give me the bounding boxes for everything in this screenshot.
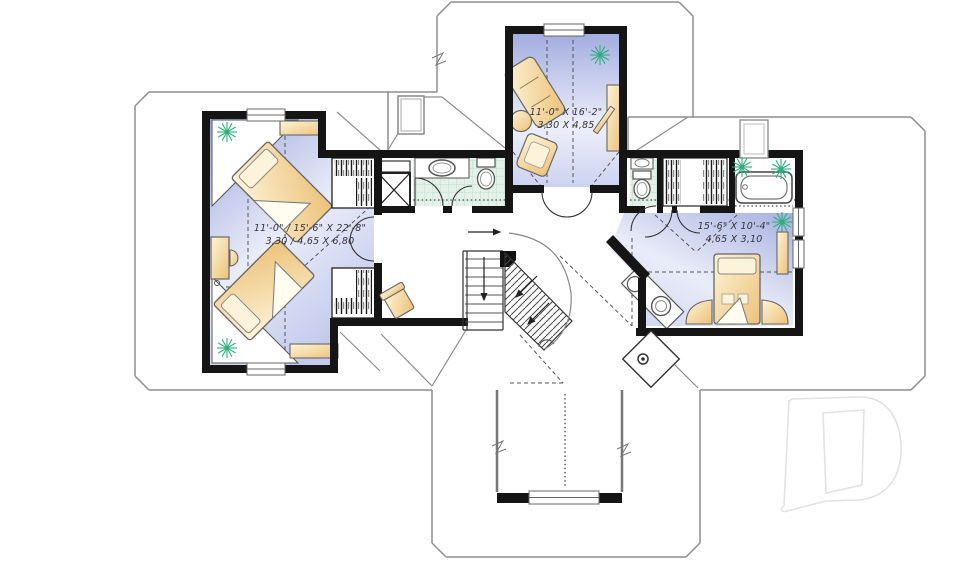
closet-left-upper [332,158,376,208]
bed-icon [714,254,760,324]
chair-icon [379,282,416,320]
bay-window [740,120,768,158]
skylight [398,96,424,134]
sink-icon [631,158,653,169]
room-dimensions-left: 11'-0" / 15'-6" X 22'-8" 3,30 / 4,65 X 6… [234,223,386,249]
dimension-metric: 4,65 X 3,10 [664,234,804,247]
dimension-imperial: 11'-0" / 15'-6" X 22'-8" [234,223,386,236]
toilet-icon [633,171,651,199]
room-dimensions-right: 15'-6" X 10'-4" 4,65 X 3,10 [664,221,804,247]
toilet-icon [477,158,495,189]
watermark-d [782,397,901,511]
dimension-metric: 3,30 / 4,65 X 6,80 [234,236,386,249]
dimension-imperial: 15'-6" X 10'-4" [664,221,804,234]
bathtub-icon [736,172,792,203]
chimney-icon [623,331,680,388]
shelf-icon [280,121,324,135]
lower-wing-walls [497,390,622,492]
dimension-imperial: 11'-0" X 16'-2" [504,107,628,120]
closet-right [663,158,727,206]
floor-plan-drawing [0,0,960,569]
sink-icon [415,158,469,178]
room-dimensions-center: 11'-0" X 16'-2" 3,30 X 4,85 [504,107,628,133]
dimension-metric: 3,30 X 4,85 [504,120,628,133]
floor-plan-canvas: 11'-0" / 15'-6" X 22'-8" 3,30 / 4,65 X 6… [0,0,960,569]
linen-cabinet [378,161,410,207]
staircase [463,232,572,350]
closet-left-lower [332,268,376,318]
